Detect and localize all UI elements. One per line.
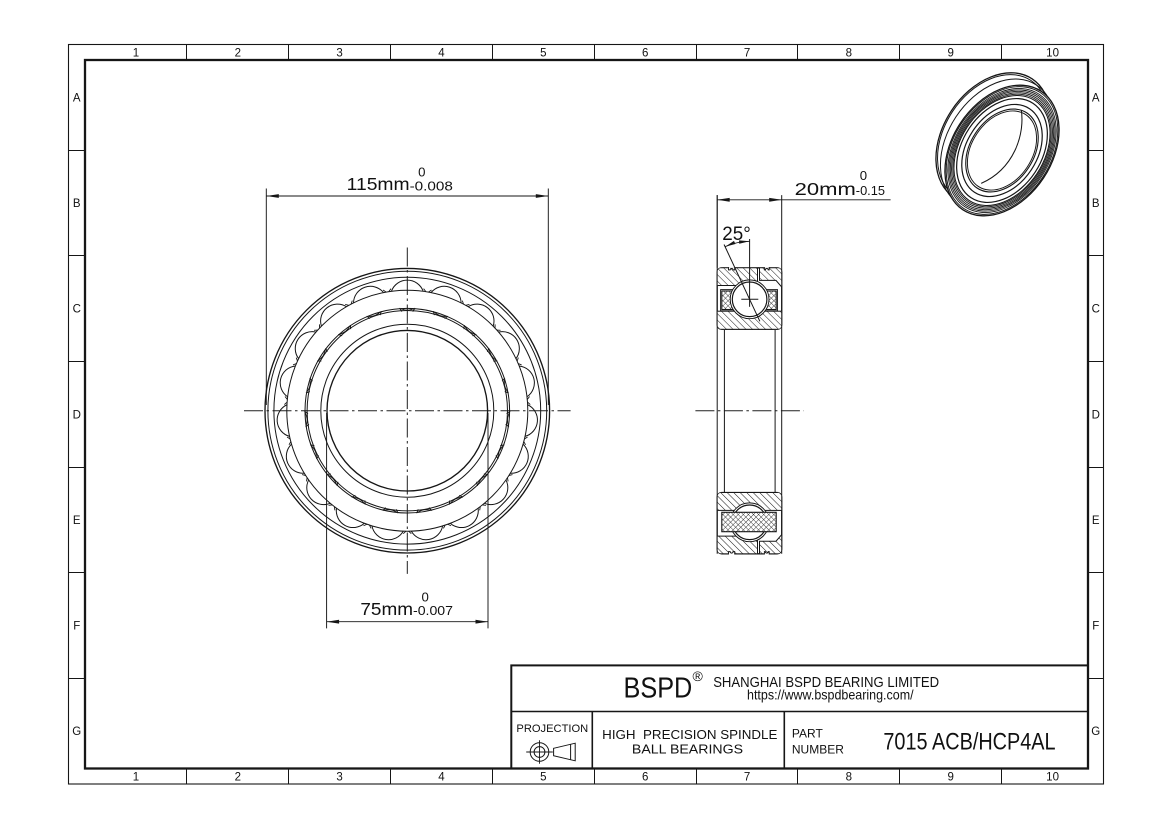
svg-text:115mm: 115mm [347, 174, 410, 194]
svg-text:5: 5 [540, 47, 546, 59]
svg-text:1: 1 [133, 771, 139, 783]
svg-text:A: A [1092, 92, 1100, 104]
svg-text:5: 5 [540, 771, 546, 783]
svg-text:A: A [73, 92, 81, 104]
svg-text:0: 0 [418, 165, 425, 180]
svg-text:G: G [72, 726, 81, 738]
svg-text:7: 7 [744, 771, 750, 783]
svg-text:8: 8 [846, 47, 852, 59]
svg-text:BALL BEARINGS: BALL BEARINGS [632, 742, 743, 757]
svg-text:8: 8 [846, 771, 852, 783]
svg-text:-0.007: -0.007 [413, 603, 453, 618]
svg-text:4: 4 [438, 771, 445, 783]
svg-text:C: C [73, 304, 81, 316]
svg-text:E: E [1092, 515, 1100, 527]
svg-text:0: 0 [860, 168, 867, 183]
svg-text:B: B [1092, 198, 1100, 210]
svg-text:®: ® [693, 668, 704, 684]
svg-text:3: 3 [336, 47, 342, 59]
svg-text:BSPD: BSPD [624, 672, 693, 704]
svg-text:D: D [73, 409, 81, 421]
svg-text:75mm: 75mm [360, 599, 413, 619]
svg-text:B: B [73, 198, 81, 210]
svg-text:0: 0 [422, 590, 429, 605]
svg-text:20mm: 20mm [795, 179, 856, 199]
svg-text:https://www.bspdbearing.com/: https://www.bspdbearing.com/ [747, 687, 914, 703]
svg-text:7: 7 [744, 47, 750, 59]
svg-text:10: 10 [1046, 771, 1059, 783]
svg-text:6: 6 [642, 47, 648, 59]
svg-text:D: D [1092, 409, 1100, 421]
svg-text:C: C [1092, 304, 1100, 316]
svg-text:4: 4 [438, 47, 445, 59]
svg-text:-0.15: -0.15 [856, 183, 885, 198]
svg-text:9: 9 [948, 771, 954, 783]
svg-text:1: 1 [133, 47, 139, 59]
svg-text:F: F [73, 621, 80, 633]
svg-text:HIGH PRECISION SPINDLE: HIGH PRECISION SPINDLE [602, 727, 777, 742]
svg-text:E: E [73, 515, 81, 527]
svg-text:NUMBER: NUMBER [792, 743, 844, 757]
svg-text:F: F [1092, 621, 1099, 633]
svg-text:25°: 25° [722, 224, 751, 245]
svg-text:2: 2 [235, 47, 241, 59]
svg-text:3: 3 [336, 771, 342, 783]
svg-text:10: 10 [1046, 47, 1059, 59]
svg-text:PROJECTION: PROJECTION [516, 723, 588, 735]
svg-text:6: 6 [642, 771, 648, 783]
svg-text:-0.008: -0.008 [410, 178, 453, 193]
svg-text:PART: PART [792, 727, 824, 741]
svg-text:G: G [1091, 726, 1100, 738]
svg-text:7015 ACB/HCP4AL: 7015 ACB/HCP4AL [883, 729, 1055, 756]
svg-text:2: 2 [235, 771, 241, 783]
svg-text:9: 9 [948, 47, 954, 59]
